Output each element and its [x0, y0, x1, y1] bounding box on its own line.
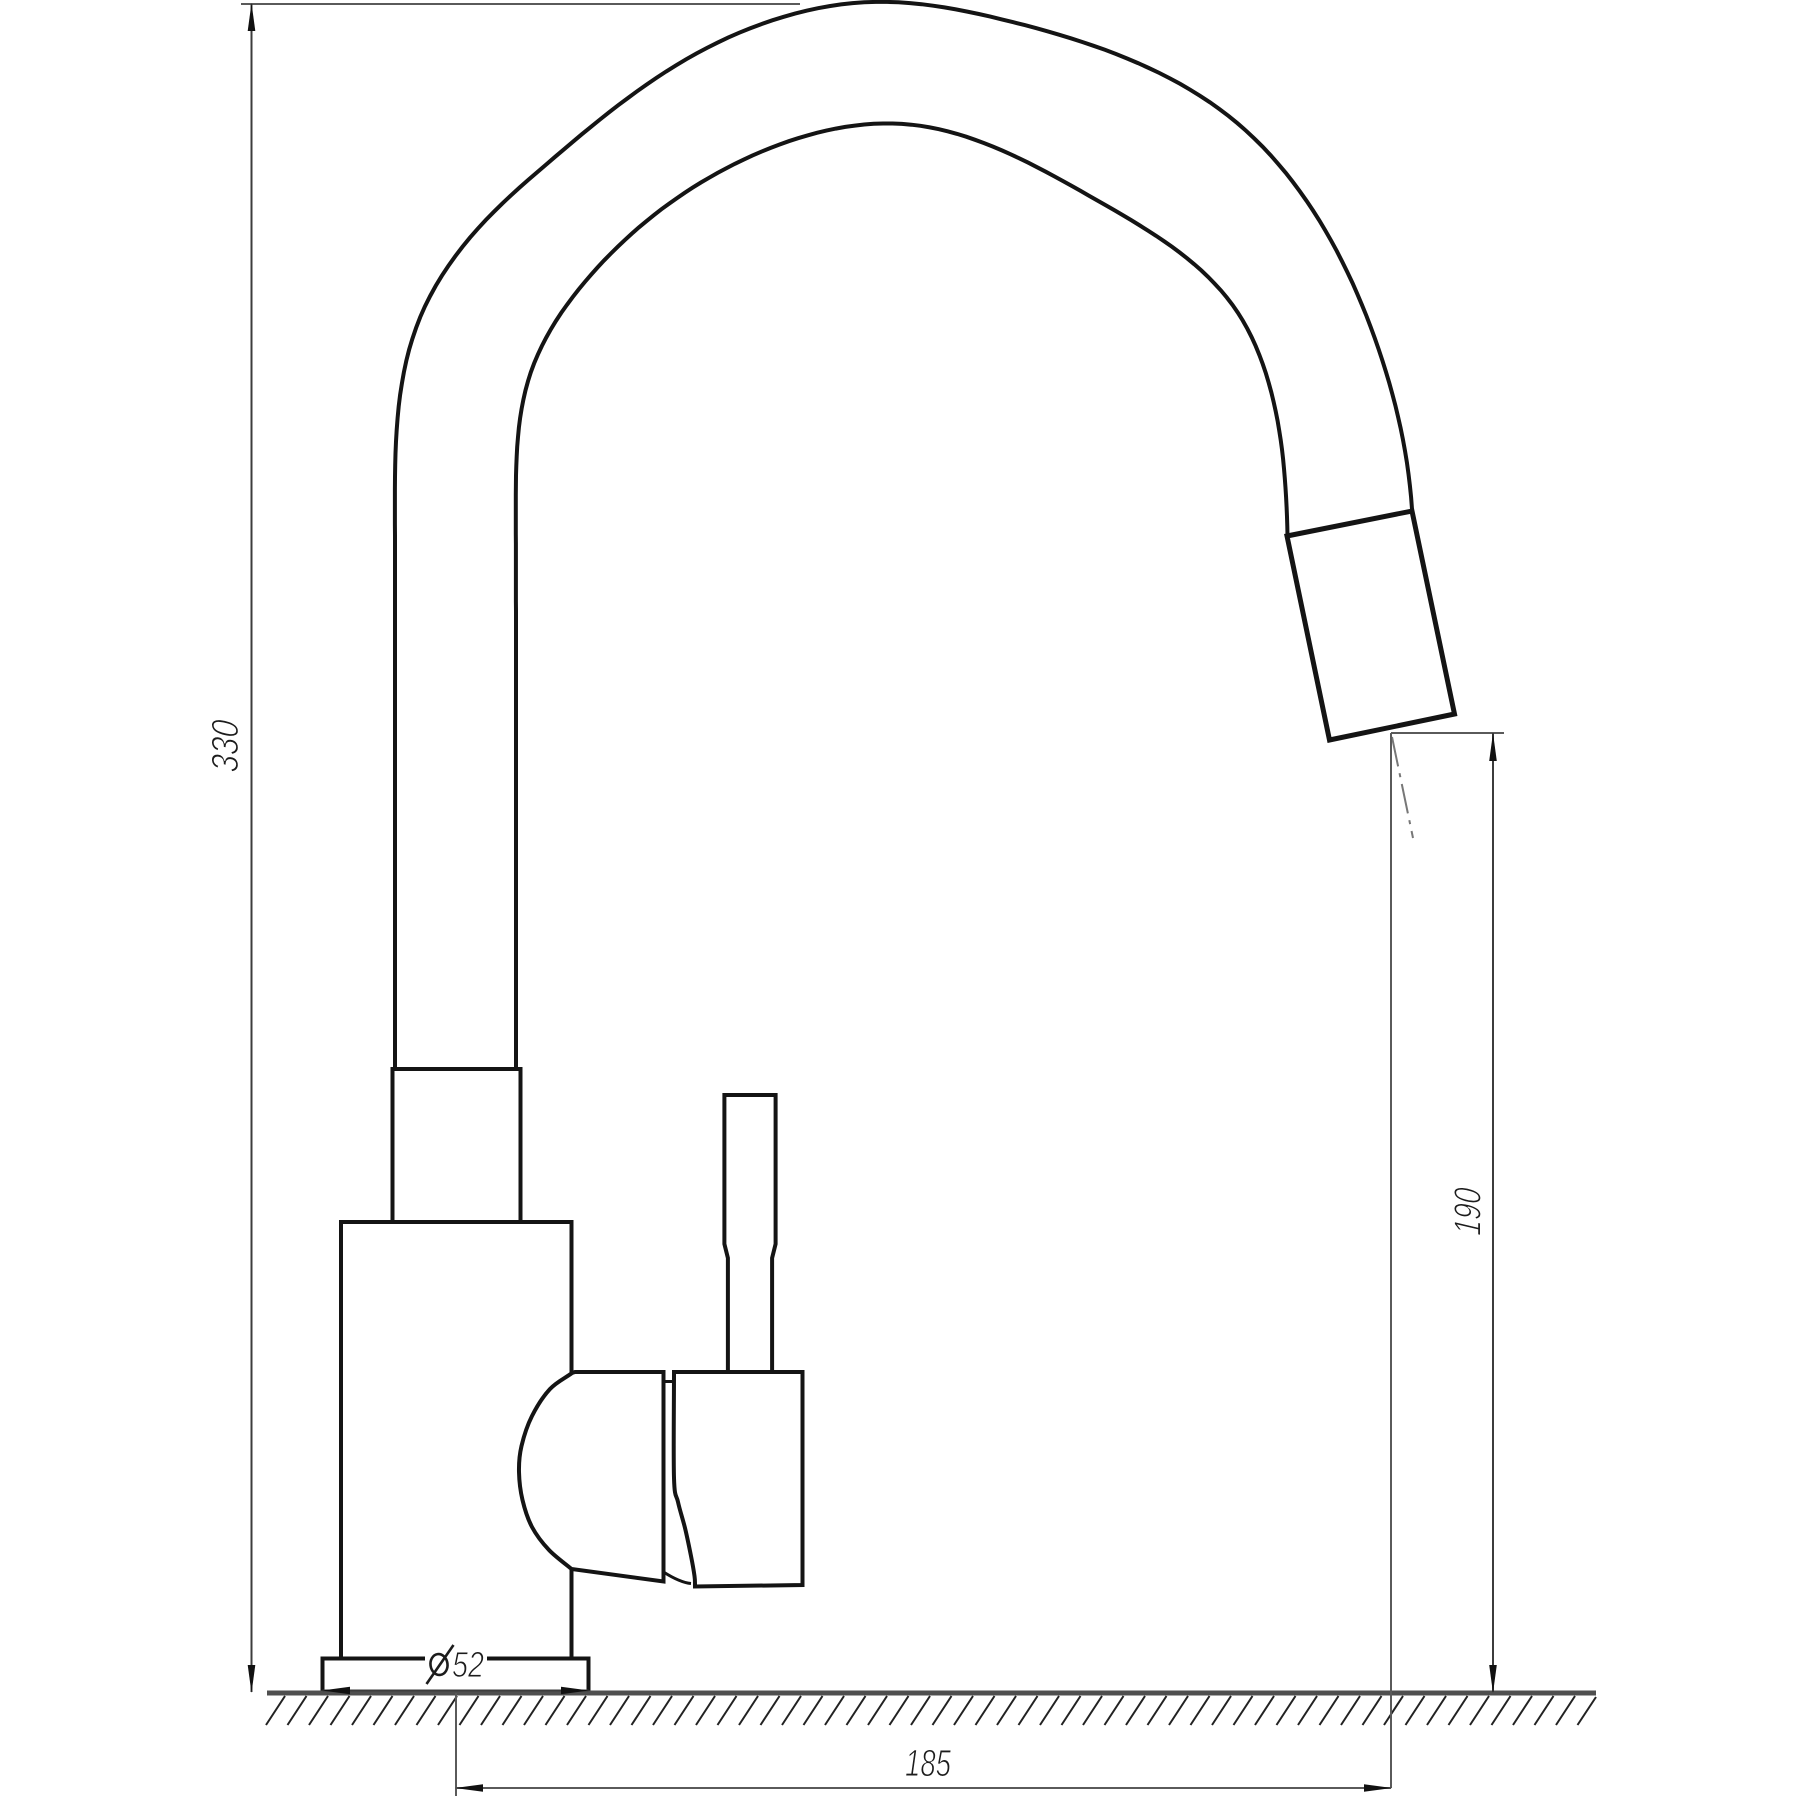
svg-text:185: 185: [905, 1743, 952, 1785]
svg-text:330: 330: [205, 718, 247, 774]
svg-text:190: 190: [1448, 1186, 1490, 1237]
svg-text:52: 52: [452, 1644, 484, 1685]
